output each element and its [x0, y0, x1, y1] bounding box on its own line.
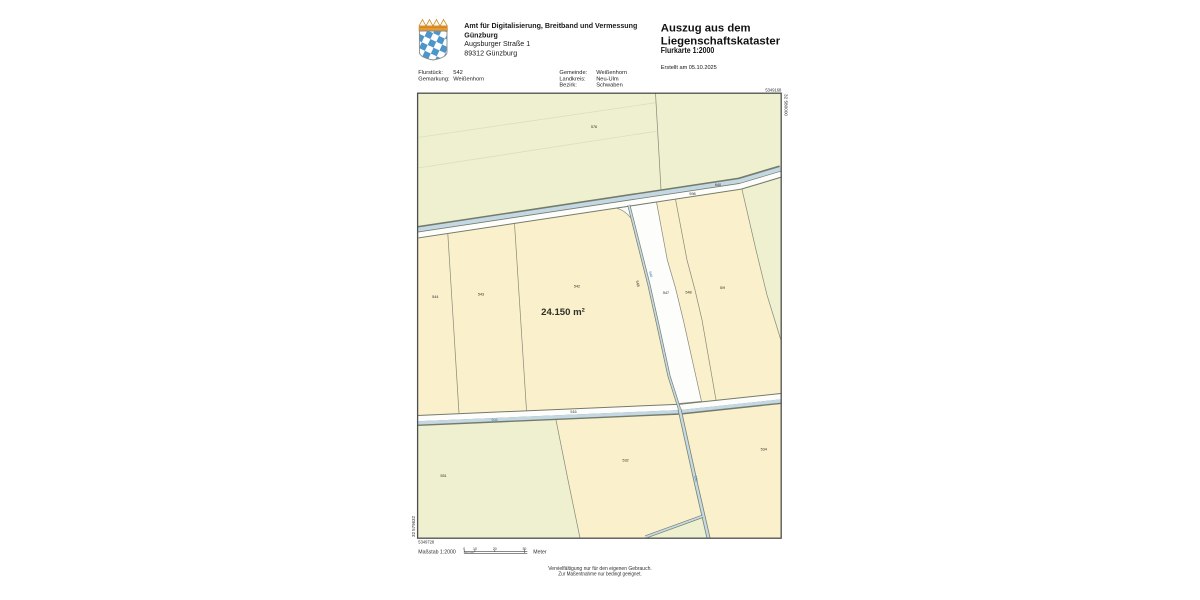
svg-text:10: 10: [473, 547, 477, 551]
svg-text:542: 542: [574, 284, 580, 288]
svg-text:Landkreis:: Landkreis:: [559, 76, 586, 82]
svg-text:Neu-Ulm: Neu-Ulm: [596, 76, 619, 82]
svg-text:0: 0: [463, 547, 465, 551]
svg-text:543: 543: [478, 292, 484, 296]
svg-text:Weißenhorn: Weißenhorn: [596, 70, 627, 76]
svg-text:32 579632: 32 579632: [411, 515, 416, 537]
svg-text:20: 20: [493, 547, 497, 551]
svg-text:5/9: 5/9: [720, 286, 725, 290]
svg-text:32 580000: 32 580000: [783, 94, 788, 117]
svg-text:Gemarkung:: Gemarkung:: [418, 76, 450, 82]
svg-text:Amt für Digitalisierung, Breit: Amt für Digitalisierung, Breitband und V…: [464, 22, 637, 30]
svg-text:508: 508: [492, 418, 498, 422]
svg-text:Gemeinde:: Gemeinde:: [559, 70, 587, 76]
svg-text:Maßstab 1:2000: Maßstab 1:2000: [418, 550, 456, 556]
svg-text:Augsburger Straße 1: Augsburger Straße 1: [464, 40, 530, 48]
svg-text:89312 Günzburg: 89312 Günzburg: [464, 49, 517, 57]
svg-text:Zur Maßentnahme nur bedingt ge: Zur Maßentnahme nur bedingt geeignet.: [558, 572, 641, 578]
svg-text:542: 542: [453, 70, 463, 76]
svg-text:5349168: 5349168: [765, 87, 781, 92]
svg-text:547: 547: [663, 291, 669, 295]
svg-text:Weißenhorn: Weißenhorn: [453, 76, 484, 82]
svg-text:Günzburg: Günzburg: [464, 31, 498, 39]
svg-text:24.150 m²: 24.150 m²: [541, 307, 585, 318]
svg-text:576: 576: [591, 125, 597, 129]
svg-text:Schwaben: Schwaben: [596, 83, 623, 89]
svg-text:548: 548: [685, 291, 691, 295]
svg-text:5349728: 5349728: [418, 539, 434, 544]
svg-text:532: 532: [622, 459, 628, 463]
svg-text:30: 30: [522, 547, 526, 551]
svg-text:551: 551: [440, 474, 446, 478]
svg-text:544: 544: [432, 295, 438, 299]
svg-text:Flurstück:: Flurstück:: [418, 70, 443, 76]
svg-text:Flurkarte 1:2000: Flurkarte 1:2000: [661, 46, 715, 55]
svg-text:640: 640: [715, 183, 721, 187]
svg-text:Bezirk:: Bezirk:: [559, 83, 577, 89]
svg-text:516: 516: [570, 410, 576, 414]
svg-text:Meter: Meter: [533, 549, 547, 555]
svg-text:534: 534: [761, 448, 767, 452]
svg-text:Auszug aus dem: Auszug aus dem: [661, 22, 751, 34]
svg-text:598: 598: [689, 192, 695, 196]
svg-text:Erstellt am 05.10.2025: Erstellt am 05.10.2025: [661, 65, 718, 71]
